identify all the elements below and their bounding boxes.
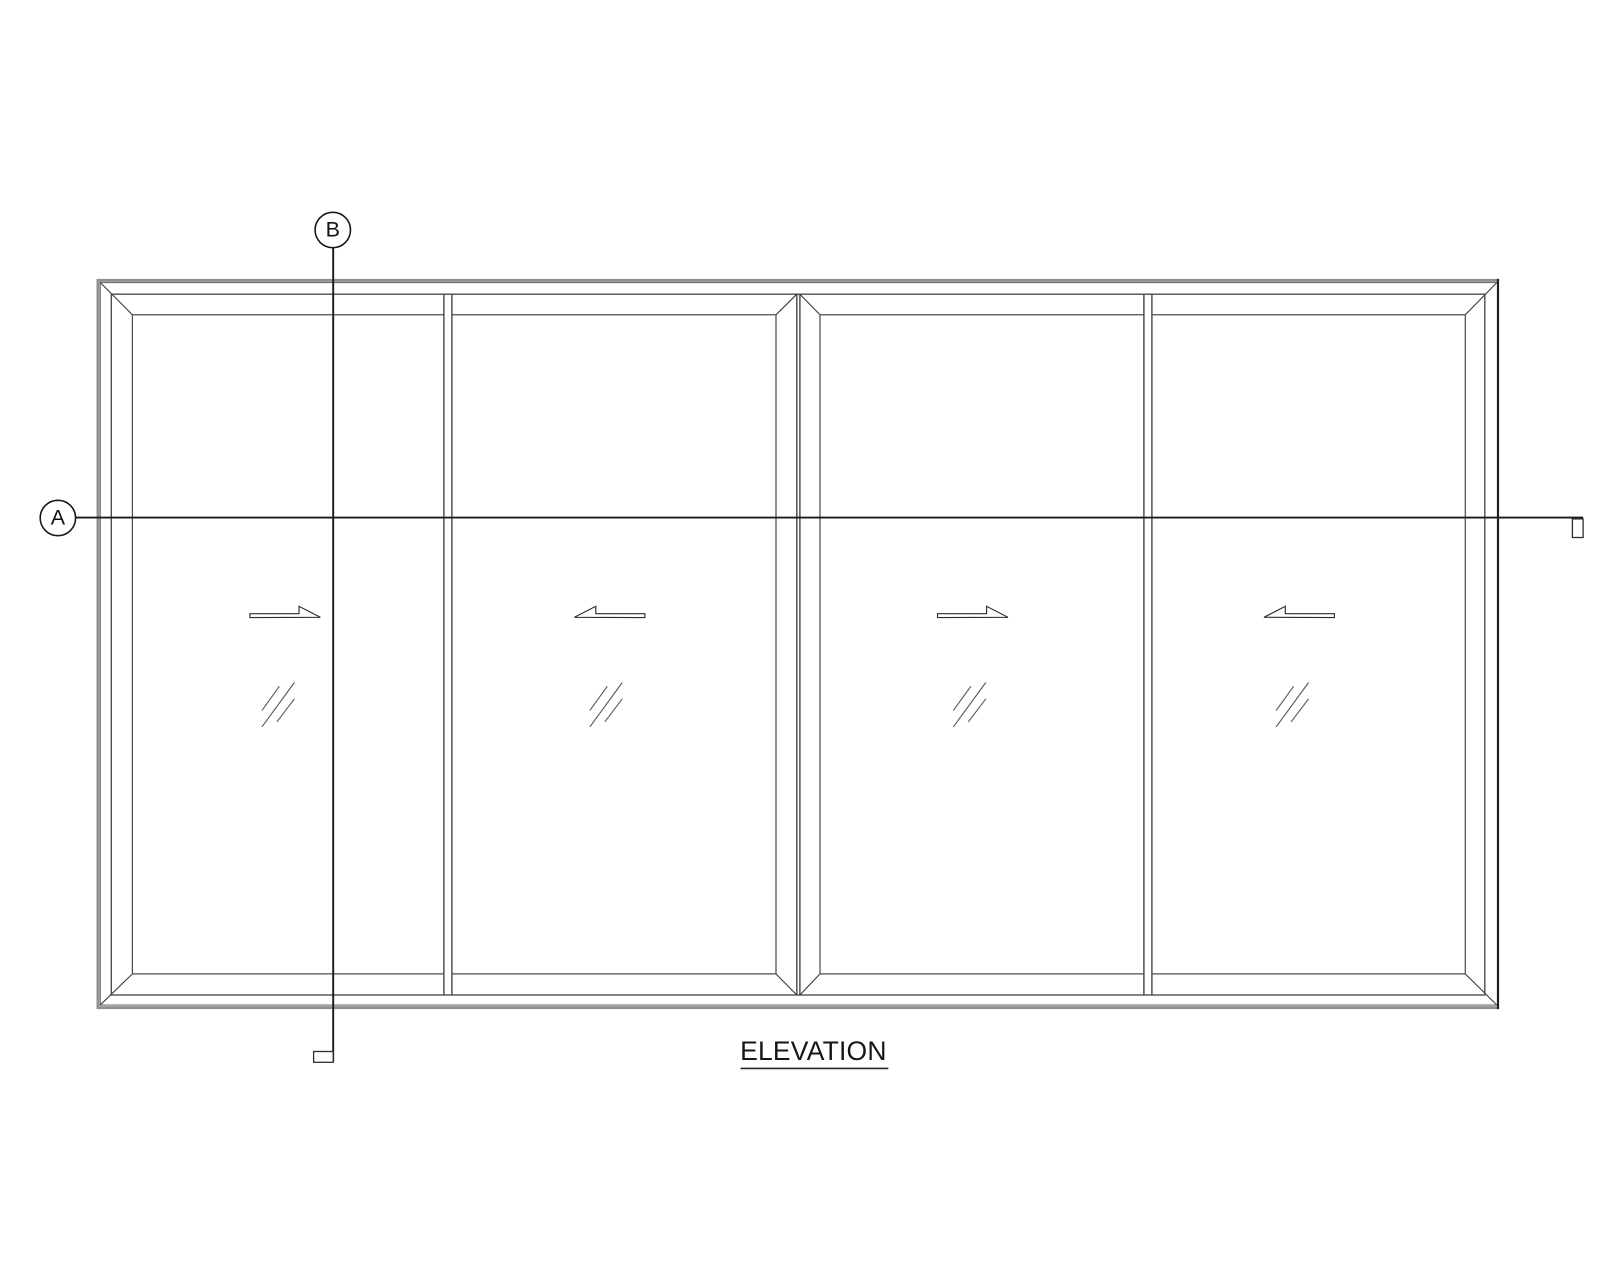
svg-text:A: A bbox=[51, 506, 66, 530]
svg-text:B: B bbox=[326, 218, 340, 242]
svg-text:ELEVATION: ELEVATION bbox=[740, 1036, 887, 1066]
